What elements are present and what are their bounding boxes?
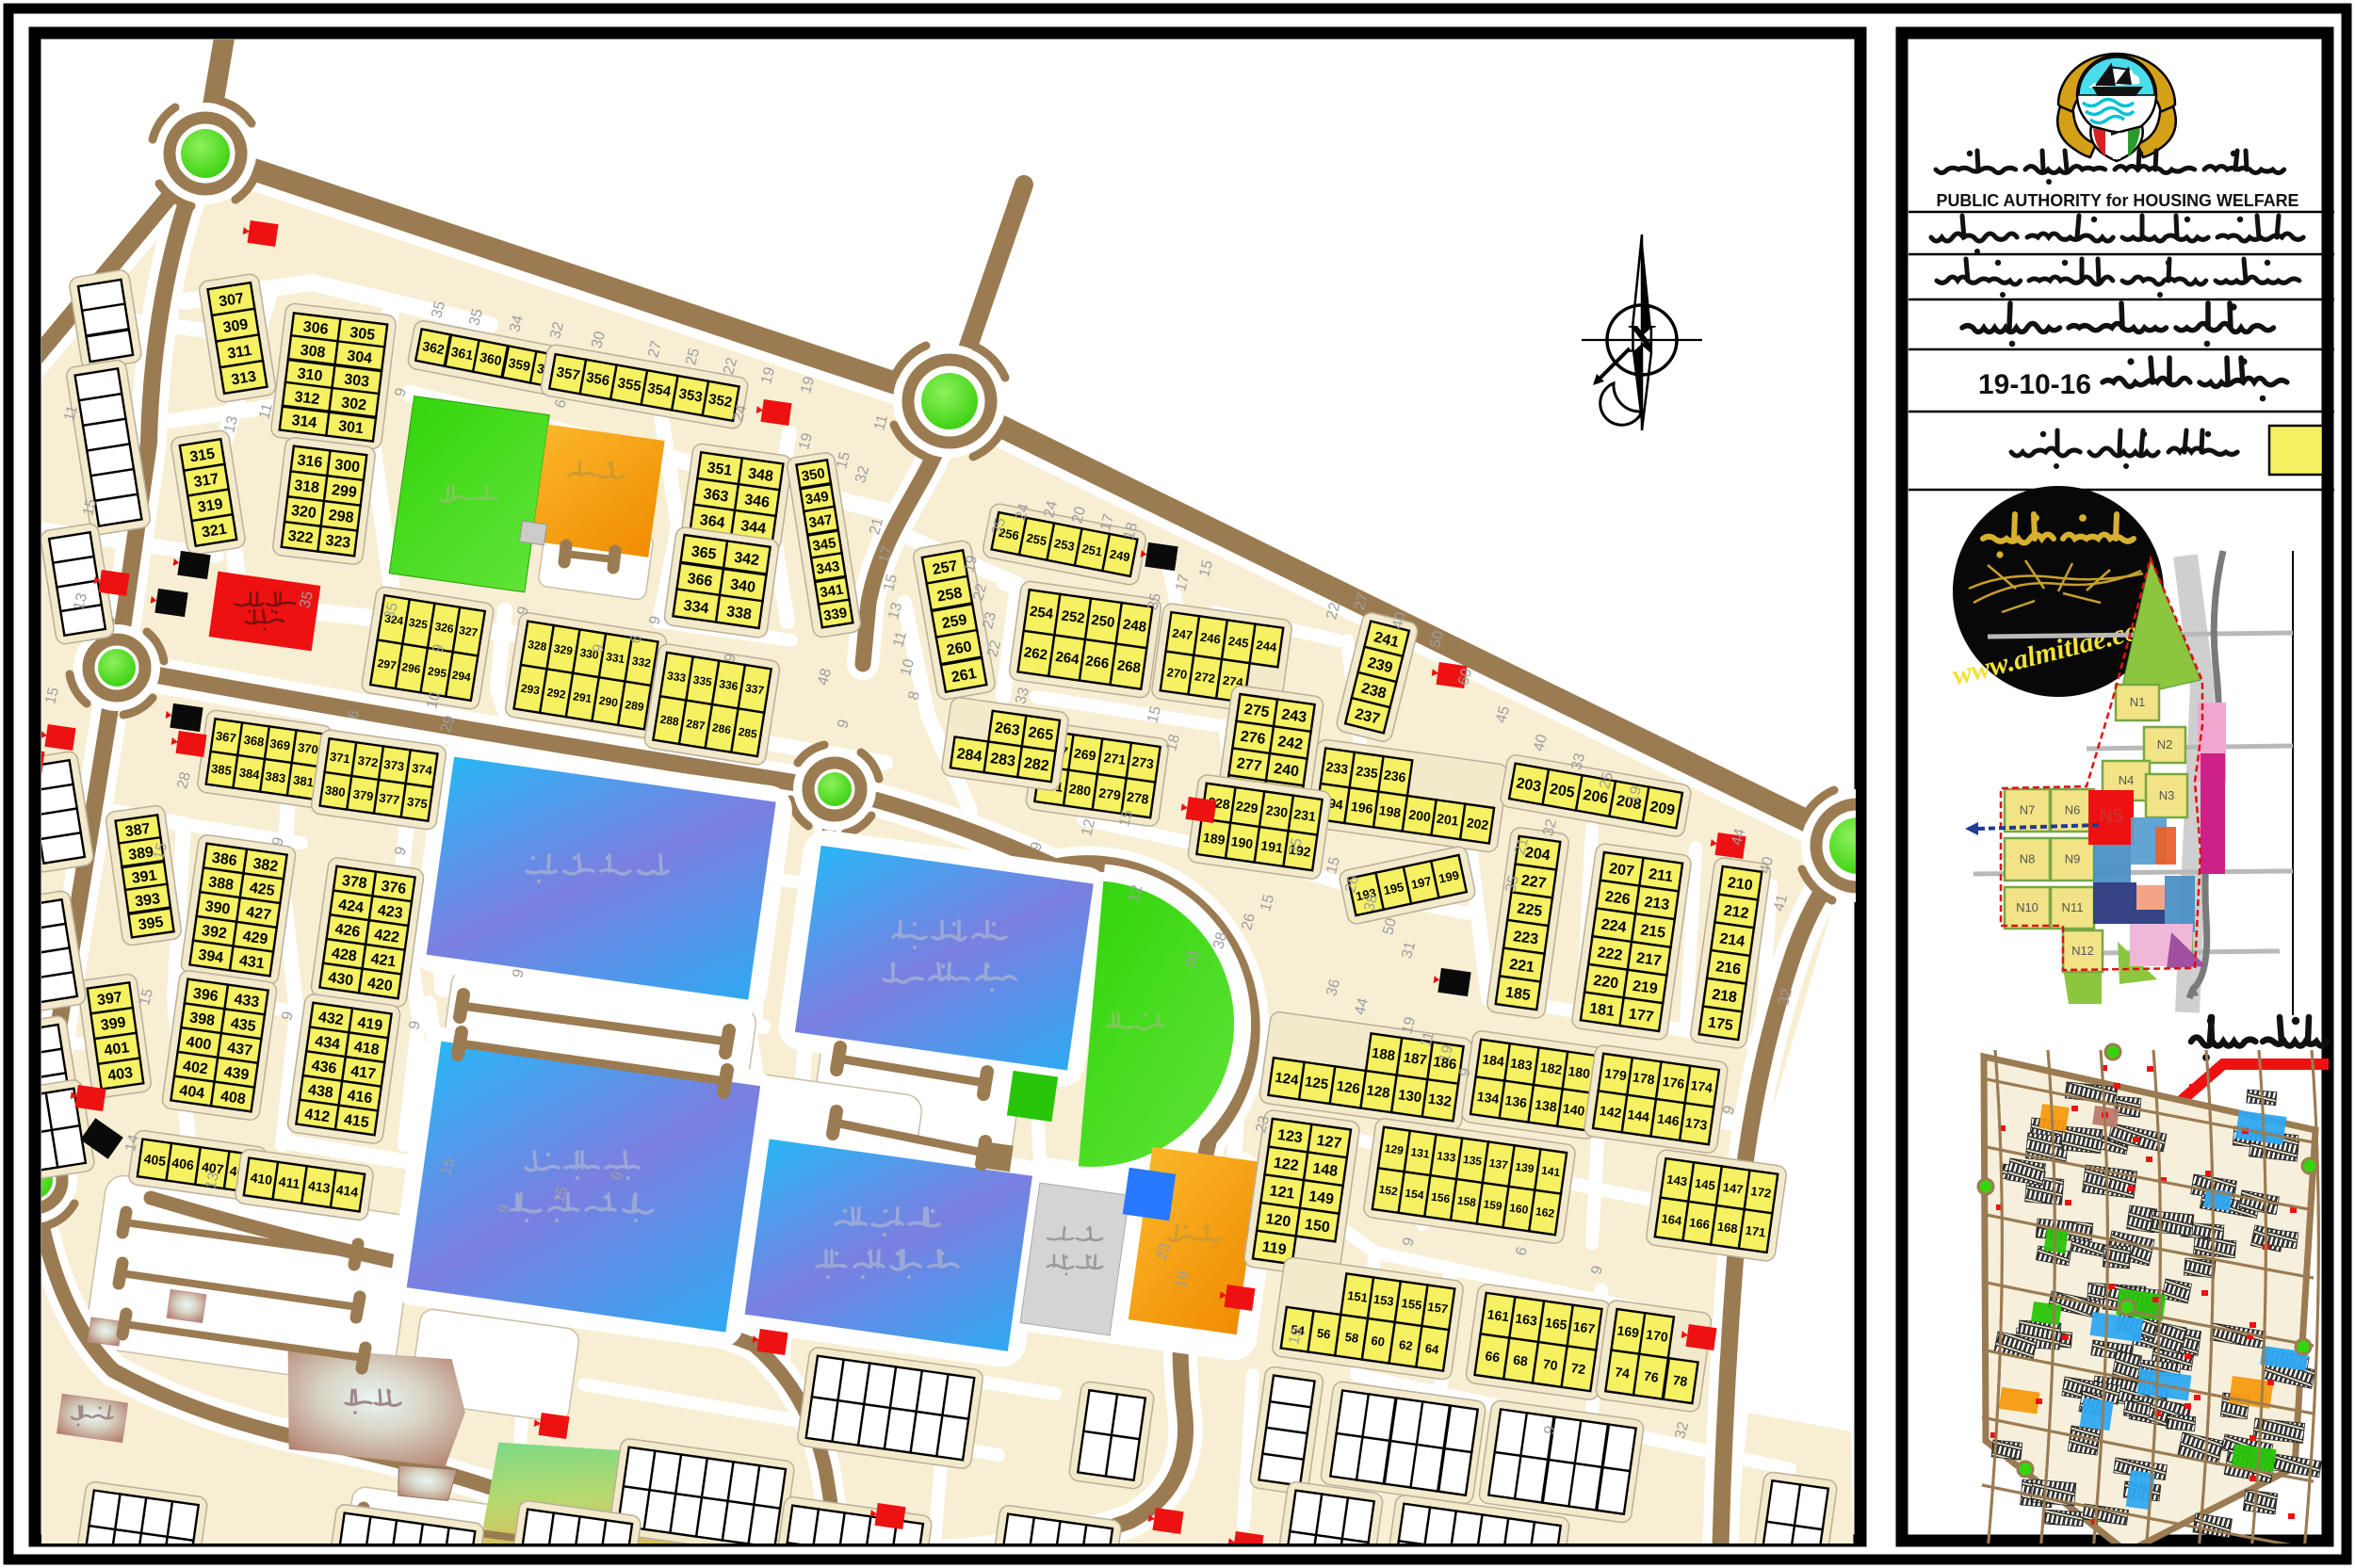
svg-text:173: 173 (1684, 1115, 1709, 1133)
svg-text:379: 379 (352, 786, 375, 803)
svg-text:279: 279 (1098, 784, 1123, 802)
svg-text:164: 164 (1661, 1211, 1683, 1228)
svg-text:303: 303 (343, 371, 370, 390)
svg-text:N1: N1 (2130, 695, 2146, 709)
svg-text:247: 247 (1172, 625, 1194, 642)
svg-text:70: 70 (1542, 1356, 1559, 1373)
svg-text:151: 151 (1346, 1288, 1369, 1305)
svg-text:262: 262 (1023, 644, 1048, 663)
svg-text:298: 298 (328, 508, 355, 526)
svg-text:189: 189 (1202, 830, 1226, 848)
svg-text:147: 147 (1722, 1180, 1745, 1197)
svg-text:370: 370 (297, 740, 319, 757)
svg-text:179: 179 (1604, 1065, 1629, 1083)
svg-text:231: 231 (1293, 806, 1318, 824)
svg-text:N7: N7 (2020, 803, 2036, 817)
svg-text:143: 143 (1666, 1172, 1689, 1188)
svg-text:136: 136 (1504, 1092, 1529, 1110)
svg-text:155: 155 (1401, 1296, 1423, 1313)
svg-text:254: 254 (1029, 604, 1055, 622)
svg-text:190: 190 (1230, 833, 1255, 851)
svg-text:188: 188 (1371, 1045, 1396, 1064)
svg-text:129: 129 (1384, 1141, 1405, 1157)
svg-text:367: 367 (215, 729, 237, 746)
svg-text:166: 166 (1688, 1215, 1711, 1232)
svg-text:62: 62 (1398, 1337, 1413, 1353)
svg-text:157: 157 (1427, 1300, 1450, 1317)
svg-text:306: 306 (302, 319, 330, 338)
svg-text:374: 374 (411, 761, 433, 778)
svg-text:N3: N3 (2159, 788, 2175, 802)
svg-text:N8: N8 (2020, 852, 2036, 866)
svg-text:141: 141 (1540, 1164, 1561, 1180)
svg-text:171: 171 (1745, 1223, 1767, 1240)
svg-text:159: 159 (1483, 1197, 1503, 1213)
svg-text:245: 245 (1227, 634, 1250, 651)
svg-text:233: 233 (1325, 759, 1350, 777)
svg-text:230: 230 (1265, 802, 1290, 820)
svg-text:119: 119 (1261, 1239, 1288, 1258)
svg-text:264: 264 (1054, 649, 1080, 668)
svg-text:138: 138 (1534, 1096, 1558, 1114)
svg-text:252: 252 (1061, 607, 1086, 626)
svg-text:299: 299 (331, 482, 358, 501)
svg-text:130: 130 (1397, 1087, 1422, 1106)
svg-text:411: 411 (278, 1173, 301, 1191)
svg-text:146: 146 (1656, 1110, 1681, 1128)
svg-text:19-10-16: 19-10-16 (1978, 369, 2091, 400)
svg-text:406: 406 (171, 1155, 195, 1172)
svg-text:236: 236 (1383, 767, 1407, 784)
svg-text:125: 125 (1304, 1074, 1329, 1092)
svg-text:184: 184 (1482, 1051, 1506, 1069)
svg-text:202: 202 (1466, 815, 1490, 832)
svg-text:300: 300 (333, 457, 361, 476)
svg-text:273: 273 (1131, 753, 1156, 771)
svg-text:167: 167 (1572, 1318, 1597, 1336)
svg-text:153: 153 (1372, 1292, 1395, 1309)
svg-text:310: 310 (297, 365, 324, 384)
svg-text:161: 161 (1486, 1306, 1511, 1324)
svg-text:133: 133 (1436, 1149, 1456, 1165)
svg-text:128: 128 (1365, 1082, 1390, 1101)
svg-text:410: 410 (250, 1170, 274, 1188)
svg-text:372: 372 (357, 753, 380, 770)
svg-text:182: 182 (1539, 1059, 1564, 1077)
svg-text:135: 135 (1462, 1153, 1483, 1169)
svg-text:266: 266 (1084, 653, 1110, 671)
svg-text:64: 64 (1424, 1341, 1440, 1357)
svg-text:134: 134 (1476, 1089, 1501, 1107)
svg-text:301: 301 (337, 418, 365, 437)
svg-text:278: 278 (1126, 789, 1150, 807)
svg-text:139: 139 (1515, 1160, 1535, 1176)
svg-text:385: 385 (210, 761, 233, 778)
svg-text:N2: N2 (2157, 737, 2173, 752)
svg-text:154: 154 (1405, 1187, 1425, 1203)
svg-text:72: 72 (1570, 1360, 1587, 1377)
svg-text:304: 304 (346, 348, 373, 367)
svg-text:302: 302 (340, 395, 367, 413)
svg-text:200: 200 (1408, 806, 1433, 824)
svg-text:414: 414 (335, 1182, 360, 1200)
svg-text:172: 172 (1750, 1184, 1773, 1201)
svg-text:369: 369 (269, 736, 292, 753)
svg-text:N6: N6 (2065, 803, 2081, 817)
svg-text:380: 380 (324, 783, 347, 800)
svg-text:320: 320 (290, 503, 317, 522)
svg-text:373: 373 (383, 757, 406, 774)
svg-text:66: 66 (1485, 1348, 1502, 1365)
svg-text:N9: N9 (2065, 852, 2081, 866)
svg-text:383: 383 (265, 768, 287, 785)
svg-text:269: 269 (1073, 745, 1097, 763)
svg-text:271: 271 (1103, 750, 1128, 768)
svg-text:248: 248 (1122, 617, 1147, 636)
svg-text:377: 377 (378, 790, 400, 807)
svg-text:145: 145 (1694, 1176, 1716, 1193)
svg-text:211: 211 (1648, 866, 1674, 885)
svg-text:316: 316 (297, 452, 324, 471)
svg-text:163: 163 (1515, 1310, 1539, 1328)
svg-text:74: 74 (1614, 1364, 1631, 1381)
svg-text:131: 131 (1410, 1145, 1431, 1161)
svg-text:183: 183 (1509, 1055, 1534, 1073)
svg-text:N: N (1628, 318, 1656, 362)
svg-text:272: 272 (1194, 669, 1216, 686)
svg-text:187: 187 (1403, 1049, 1428, 1068)
svg-text:132: 132 (1427, 1091, 1453, 1110)
svg-text:165: 165 (1544, 1315, 1568, 1333)
svg-text:137: 137 (1488, 1156, 1509, 1172)
svg-text:142: 142 (1599, 1103, 1623, 1121)
svg-text:176: 176 (1662, 1074, 1686, 1091)
svg-text:N10: N10 (2016, 900, 2038, 914)
svg-text:308: 308 (300, 343, 327, 362)
svg-text:381: 381 (292, 773, 315, 790)
svg-text:174: 174 (1690, 1077, 1714, 1095)
svg-text:170: 170 (1645, 1327, 1669, 1345)
svg-text:169: 169 (1616, 1322, 1641, 1340)
svg-text:N4: N4 (2119, 773, 2135, 787)
svg-text:246: 246 (1199, 630, 1222, 647)
svg-text:152: 152 (1378, 1183, 1399, 1199)
svg-text:268: 268 (1116, 657, 1142, 676)
svg-text:160: 160 (1509, 1201, 1530, 1217)
svg-text:196: 196 (1350, 799, 1374, 816)
svg-text:180: 180 (1567, 1063, 1592, 1081)
svg-text:314: 314 (291, 412, 318, 431)
svg-text:76: 76 (1643, 1368, 1660, 1385)
svg-text:405: 405 (143, 1151, 168, 1169)
svg-text:384: 384 (238, 765, 261, 782)
svg-text:201: 201 (1436, 811, 1460, 829)
svg-text:156: 156 (1430, 1190, 1451, 1206)
svg-text:280: 280 (1068, 781, 1093, 799)
svg-text:N11: N11 (2062, 900, 2084, 914)
svg-text:375: 375 (406, 795, 429, 812)
svg-text:413: 413 (307, 1178, 332, 1196)
svg-text:198: 198 (1378, 802, 1403, 820)
svg-text:126: 126 (1336, 1078, 1361, 1097)
svg-text:PUBLIC AUTHORITY for HOUSIN: PUBLIC AUTHORITY for HOUSING WELFARE (1937, 191, 2299, 210)
svg-text:158: 158 (1456, 1193, 1477, 1209)
svg-text:78: 78 (1672, 1372, 1689, 1389)
svg-text:68: 68 (1512, 1352, 1529, 1369)
svg-text:270: 270 (1166, 665, 1189, 682)
svg-text:124: 124 (1274, 1070, 1300, 1089)
svg-text:60: 60 (1371, 1334, 1386, 1350)
svg-text:322: 322 (287, 528, 315, 547)
svg-text:56: 56 (1316, 1326, 1331, 1342)
svg-text:371: 371 (329, 750, 351, 767)
svg-text:229: 229 (1235, 798, 1259, 816)
svg-text:N5: N5 (2099, 806, 2123, 827)
svg-text:312: 312 (294, 389, 321, 408)
svg-text:191: 191 (1260, 837, 1285, 855)
svg-text:250: 250 (1090, 612, 1115, 631)
svg-text:162: 162 (1535, 1204, 1555, 1220)
svg-text:244: 244 (1256, 638, 1278, 655)
svg-text:323: 323 (325, 533, 352, 552)
svg-text:168: 168 (1716, 1219, 1739, 1236)
svg-text:178: 178 (1632, 1069, 1656, 1087)
svg-text:N12: N12 (2071, 944, 2094, 958)
svg-text:305: 305 (349, 325, 376, 344)
svg-text:144: 144 (1627, 1107, 1651, 1124)
svg-text:140: 140 (1562, 1101, 1586, 1119)
svg-text:318: 318 (293, 477, 320, 496)
svg-text:368: 368 (243, 733, 266, 750)
svg-text:235: 235 (1355, 763, 1379, 781)
svg-text:58: 58 (1344, 1330, 1359, 1346)
